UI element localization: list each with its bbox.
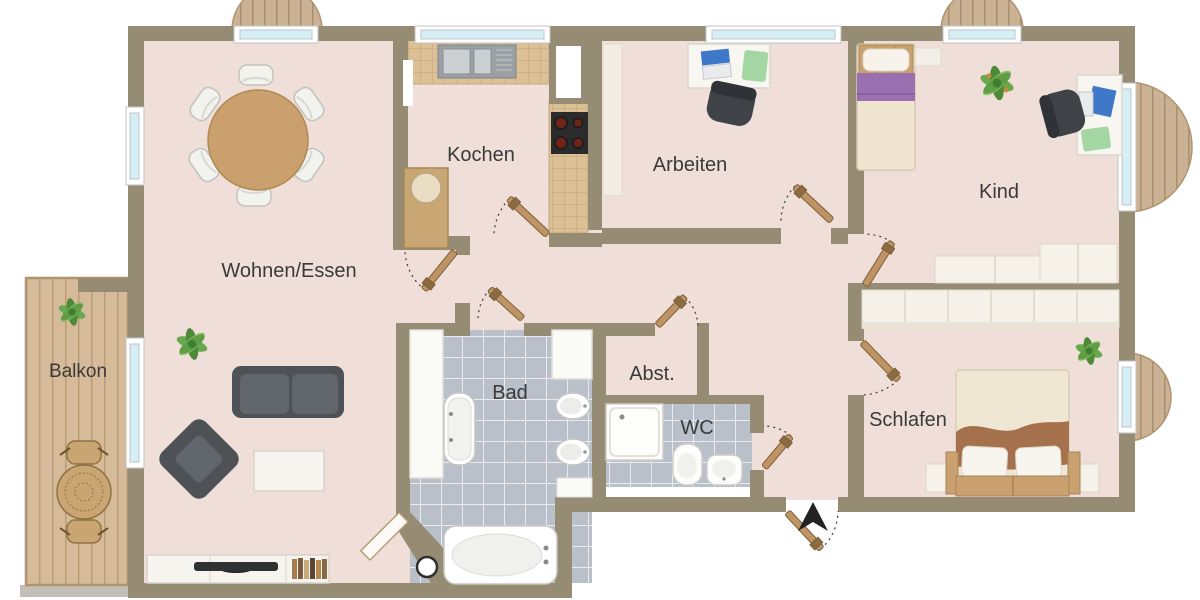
desk-pad-icon — [741, 50, 768, 82]
small-tub-icon — [444, 393, 475, 465]
floor-plan-page: Wohnen/Essen Kochen Arbeiten Kind Schlaf… — [0, 0, 1200, 600]
room-label-balkon: Balkon — [49, 361, 107, 382]
window-icon — [126, 107, 144, 185]
room-label-bad: Bad — [492, 382, 528, 404]
sink-unit-icon — [438, 45, 516, 78]
wall-niche — [403, 60, 413, 106]
pillow-icon — [961, 446, 1008, 479]
room-label-wc: WC — [680, 417, 713, 439]
shelf-icon — [915, 48, 941, 66]
desk-pad-icon — [1081, 126, 1112, 152]
cabinet-icon — [552, 330, 592, 379]
toilet-icon — [673, 444, 702, 485]
window-icon — [706, 26, 841, 43]
washbasin-icon — [556, 393, 590, 419]
pillow-icon — [863, 49, 909, 71]
dining-chair-icon — [239, 65, 273, 85]
wardrobe-icon — [862, 290, 1119, 329]
dining-table-icon — [208, 90, 308, 190]
shelf-icon — [603, 44, 622, 196]
wc-threshold — [606, 487, 752, 497]
stove-icon — [551, 112, 588, 154]
laptop-icon — [701, 49, 732, 80]
pillow-icon — [1015, 446, 1062, 479]
cabinet-icon — [404, 168, 448, 248]
balcony-shadow — [20, 585, 147, 597]
window-icon — [126, 338, 144, 468]
entry-direction-arrow-icon — [798, 502, 828, 531]
double-bed-icon — [946, 370, 1080, 496]
room-label-schlafen: Schlafen — [869, 409, 947, 431]
garden-table-icon — [57, 465, 111, 519]
window-icon — [1118, 361, 1136, 433]
cabinet-icon — [410, 330, 443, 478]
room-label-arbeiten: Arbeiten — [653, 154, 728, 176]
room-label-abstellraum: Abst. — [629, 363, 675, 385]
blanket-icon — [857, 73, 915, 101]
floor-plan-canvas: Wohnen/Essen Kochen Arbeiten Kind Schlaf… — [0, 0, 1200, 600]
room-label-kind: Kind — [979, 181, 1019, 203]
shower-icon — [606, 404, 663, 460]
bay-window-wood — [1127, 82, 1192, 212]
wall-niche — [556, 46, 581, 98]
bathtub-icon — [444, 526, 557, 584]
room-label-kochen: Kochen — [447, 144, 515, 166]
window-icon — [943, 26, 1021, 43]
stool-icon — [417, 557, 437, 577]
window-icon — [415, 26, 550, 43]
bed-icon — [857, 44, 915, 170]
window-icon — [234, 26, 318, 43]
washbasin-icon — [556, 439, 590, 465]
plant-flower — [1004, 88, 1009, 93]
cabinet-icon — [557, 478, 592, 497]
plant-flower — [987, 74, 992, 79]
washbasin-icon — [707, 455, 742, 485]
sofa-icon — [232, 366, 344, 418]
coffee-table-icon — [254, 451, 324, 491]
room-label-wohnen-essen: Wohnen/Essen — [221, 260, 356, 282]
